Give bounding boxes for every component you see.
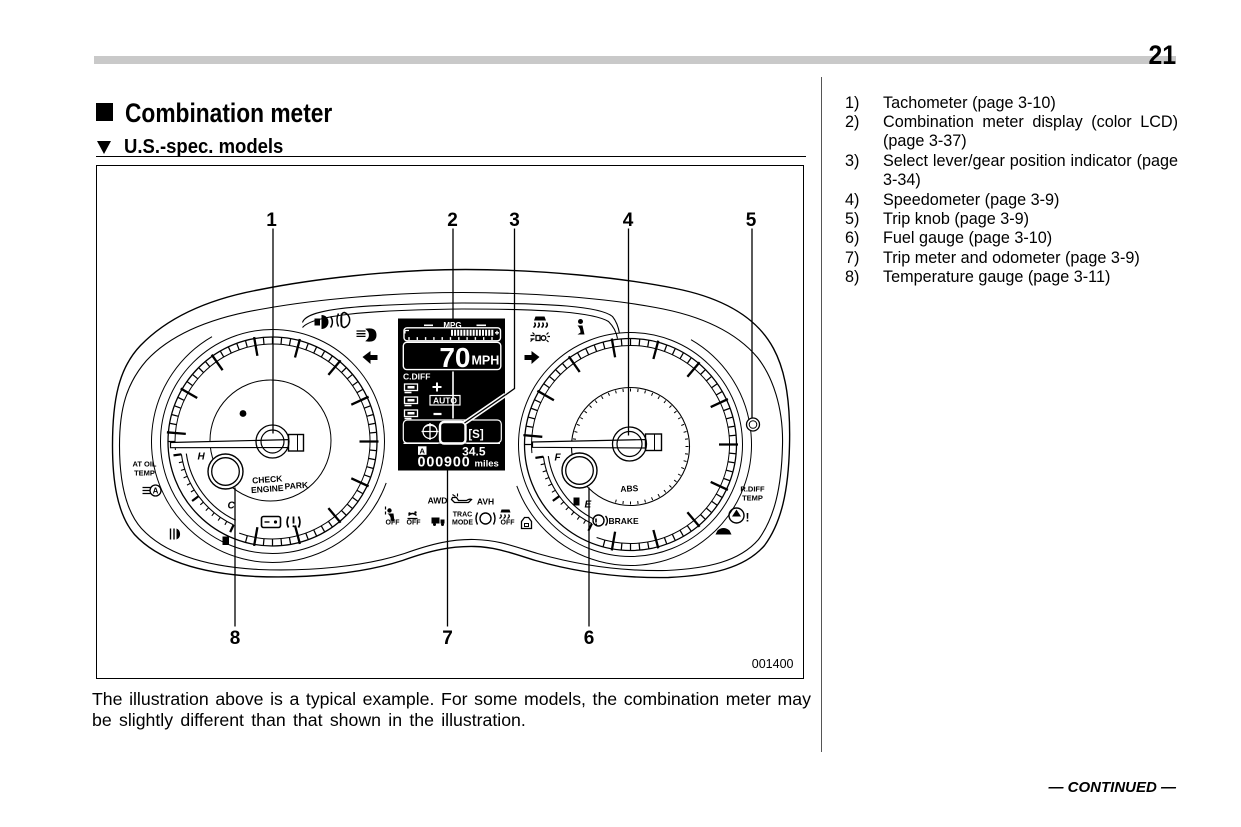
svg-text:H: H (197, 451, 205, 462)
svg-text:1: 1 (266, 210, 277, 231)
svg-text:OFF: OFF (406, 519, 421, 526)
svg-text:A: A (152, 486, 158, 495)
svg-text:[S]: [S] (468, 429, 484, 441)
svg-text:TEMP: TEMP (742, 493, 763, 502)
svg-text:2: 2 (447, 210, 458, 231)
svg-text:E: E (584, 499, 591, 510)
svg-text:AVH: AVH (476, 496, 493, 506)
svg-text:70: 70 (439, 342, 470, 373)
svg-text:ABS: ABS (620, 483, 639, 494)
svg-text:6: 6 (583, 628, 594, 649)
svg-text:OFF: OFF (500, 519, 515, 526)
svg-text:MODE: MODE (452, 519, 473, 526)
svg-text:3: 3 (509, 210, 520, 231)
svg-text:TEMP: TEMP (134, 468, 155, 477)
svg-text:7: 7 (442, 628, 453, 649)
svg-text:TRAC: TRAC (452, 511, 471, 518)
svg-text:MPH: MPH (471, 353, 499, 367)
svg-text:8: 8 (229, 628, 240, 649)
svg-text:5: 5 (745, 210, 756, 231)
svg-text:miles: miles (474, 458, 498, 469)
svg-text:C: C (227, 500, 235, 511)
svg-text:OFF: OFF (385, 519, 400, 526)
svg-text:R.DIFF: R.DIFF (740, 484, 765, 493)
svg-text:000900: 000900 (417, 454, 470, 470)
svg-text:PARK: PARK (284, 479, 309, 491)
svg-text:001400: 001400 (751, 657, 793, 671)
svg-text:BRAKE: BRAKE (608, 516, 639, 526)
svg-text:AWD: AWD (427, 495, 447, 505)
svg-text:4: 4 (622, 210, 633, 231)
svg-text:MPG: MPG (443, 321, 461, 330)
svg-text:AT OIL: AT OIL (132, 459, 156, 468)
svg-text:C.DIFF: C.DIFF (403, 371, 430, 381)
svg-text:!: ! (745, 510, 749, 524)
svg-text:F: F (554, 452, 561, 463)
